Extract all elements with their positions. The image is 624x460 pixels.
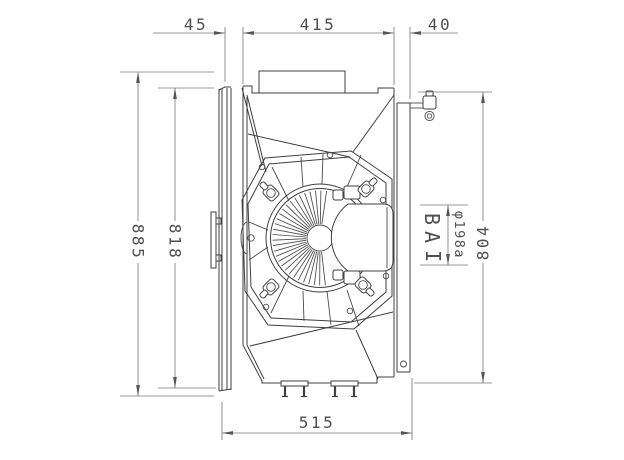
dim-515-label: 515 xyxy=(299,413,335,432)
dim-overall-height: 885 xyxy=(129,72,148,396)
fan-blade-edge xyxy=(322,252,326,285)
dim-45-label: 45 xyxy=(184,15,208,34)
dim-motor-diameter: φ198a xyxy=(446,205,467,265)
bottom-foot-right xyxy=(331,381,358,397)
mount-bolt-bottom-left xyxy=(257,278,280,301)
top-tank xyxy=(259,71,345,93)
motor-top-fitting-small xyxy=(333,190,343,200)
dim-818-label: 818 xyxy=(166,224,185,260)
dim-804-label: 804 xyxy=(474,224,493,260)
fan-blade-edge xyxy=(273,240,306,245)
fan-blade-edge xyxy=(273,239,306,241)
ba-mark: I xyxy=(421,250,445,268)
section-label: BA I xyxy=(420,213,445,268)
bottom-foot-left xyxy=(281,381,308,397)
top-bracket-pin xyxy=(410,91,436,121)
fan-blade-edge xyxy=(322,191,327,224)
fan-blade-edge xyxy=(274,242,306,251)
right-guard-strip xyxy=(397,103,410,372)
fan-motor xyxy=(331,186,393,284)
mount-bolt-top-left xyxy=(257,179,280,202)
fan-blade-edge xyxy=(320,191,321,225)
fan-blade-edge xyxy=(273,235,306,238)
technical-drawing: 45 415 40 885 818 804 φ198a BA I xyxy=(0,0,624,460)
drawing-sheet: 45 415 40 885 818 804 φ198a BA I xyxy=(0,0,624,460)
fan-blade-edge xyxy=(314,252,318,285)
motor-top-fitting xyxy=(344,186,360,199)
dim-40-label: 40 xyxy=(428,15,452,34)
dim-bottom-width: 515 xyxy=(222,413,412,435)
dim-top-row: 45 415 40 xyxy=(153,15,458,35)
dim-shroud-height: 804 xyxy=(474,92,493,383)
dim-dia-label: φ198a xyxy=(451,211,467,259)
fan-blades xyxy=(273,191,327,286)
dim-415-label: 415 xyxy=(300,15,336,34)
dim-885-label: 885 xyxy=(129,224,148,260)
dim-core-height: 818 xyxy=(166,88,185,388)
motor-bottom-fitting-small xyxy=(333,270,343,280)
ba-label: BA xyxy=(420,213,444,249)
radiator-core xyxy=(219,87,231,391)
